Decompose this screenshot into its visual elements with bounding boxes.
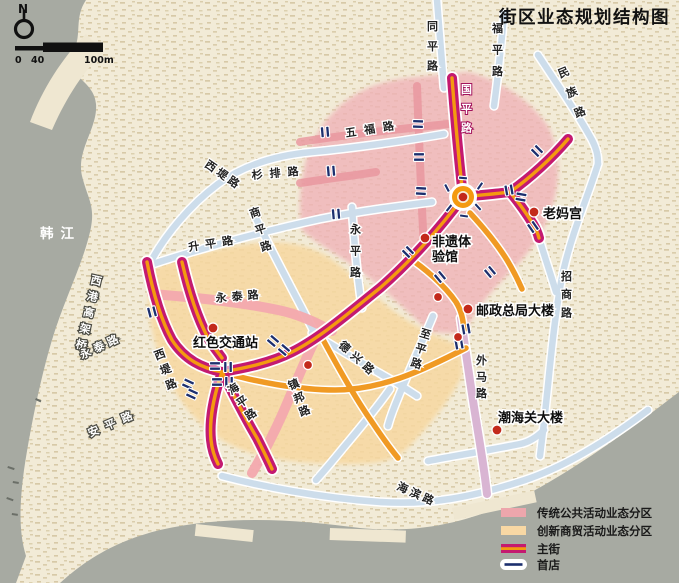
legend-swatch-innovation-zone <box>501 526 526 535</box>
poi-label-heritage-line1: 非遗体 <box>432 234 472 250</box>
poi-label-heritage-line2: 验馆 <box>432 249 458 265</box>
road-label-fuping: 福平路 <box>491 21 504 78</box>
poi-dot-post-office <box>463 304 473 314</box>
road-label-zhaoshang: 招商路 <box>561 269 573 319</box>
node-center-dot <box>459 193 468 202</box>
legend-label-traditional-zone: 传统公共活动业态分区 <box>536 506 652 520</box>
legend-label-innovation-zone: 创新商贸活动业态分区 <box>536 524 652 538</box>
legend-label-first-store: 首店 <box>537 558 560 572</box>
poi-dot-laomagong <box>529 207 539 217</box>
river-label: 韩江 <box>40 225 81 242</box>
scale-tick-40: 40 <box>31 55 45 66</box>
poi-dot-heritage-hall <box>420 233 430 243</box>
map-canvas: 同平路 福平路 民族路 国平路 五福路 西堤路 杉排路 升平路 商平路 永平路 … <box>0 0 679 583</box>
poi-dot-unlabeled-2 <box>454 333 463 342</box>
poi-label-customs-house: 潮海关大楼 <box>498 410 563 426</box>
legend-swatch-first-store <box>500 559 527 570</box>
legend-swatch-main-street <box>501 544 526 553</box>
scale-tick-0: 0 <box>15 55 22 66</box>
poi-label-red-station: 红色交通站 <box>193 335 258 351</box>
road-label-waima: 外马路 <box>475 353 488 400</box>
planning-map: 同平路 福平路 民族路 国平路 五福路 西堤路 杉排路 升平路 商平路 永平路 … <box>0 0 679 583</box>
road-label-guoping: 国平路 <box>461 83 473 135</box>
poi-dot-unlabeled-3 <box>304 361 313 370</box>
legend-label-main-street: 主街 <box>537 542 560 556</box>
poi-label-laomagong: 老妈宫 <box>542 206 582 222</box>
poi-label-post-office: 邮政总局大楼 <box>476 303 554 319</box>
scale-tick-100: 100m <box>84 55 114 66</box>
road-label-yongping: 永平路 <box>349 222 362 279</box>
legend-swatch-traditional-zone <box>501 508 526 517</box>
poi-dot-customs-house <box>492 425 502 435</box>
poi-dot-unlabeled-1 <box>434 293 443 302</box>
road-label-tongping: 同平路 <box>427 20 439 73</box>
map-title: 街区业态规划结构图 <box>498 7 670 28</box>
poi-dot-red-station <box>208 323 218 333</box>
